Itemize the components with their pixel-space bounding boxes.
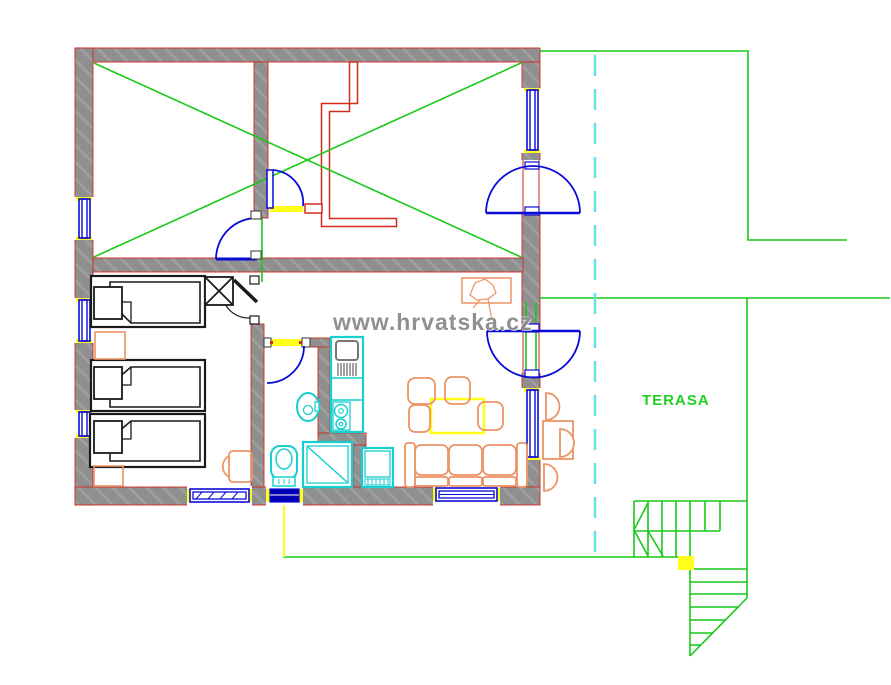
toilet [271, 446, 297, 486]
wall-middle [93, 258, 523, 272]
sofa [405, 443, 527, 487]
nightstand [94, 466, 123, 486]
wall-bedroom-right [251, 324, 264, 487]
red-partition [305, 62, 397, 227]
floor-plan-drawing [0, 0, 891, 685]
wall-room-divider [254, 62, 268, 218]
wall-kitchen [318, 347, 330, 433]
shower [303, 442, 352, 487]
bed [90, 414, 205, 467]
window-bath [266, 489, 303, 502]
floor-plan-canvas: www.hrvatska.cz TERASA [0, 0, 891, 685]
watermark-text: www.hrvatska.cz [333, 309, 573, 336]
stairs-direction-arrow [634, 503, 648, 530]
dining-chair [409, 405, 430, 432]
door-red-partition [267, 170, 303, 212]
bedroom-chair [223, 451, 252, 482]
terrace-chair [544, 464, 558, 491]
door-upper-rooms [216, 211, 261, 259]
wall-top [75, 48, 540, 62]
terrace-label: TERASA [642, 392, 710, 409]
kitchen-unit [331, 337, 363, 432]
window [76, 298, 92, 343]
washing-machine [362, 448, 393, 487]
terrace-furniture [543, 393, 574, 491]
terrace-chair [546, 393, 560, 420]
green-cross-upper-rooms [94, 63, 521, 282]
window [76, 197, 92, 240]
bed [91, 276, 205, 327]
sink [297, 393, 319, 421]
window [187, 489, 252, 502]
dining-chair [478, 402, 503, 430]
wardrobe [205, 277, 233, 305]
door-bathroom [264, 338, 310, 383]
window [524, 88, 540, 153]
stairs-yellow-marker [678, 556, 694, 570]
bed [91, 360, 205, 411]
nightstand [95, 332, 125, 359]
stairs [634, 501, 747, 656]
window [433, 488, 500, 501]
